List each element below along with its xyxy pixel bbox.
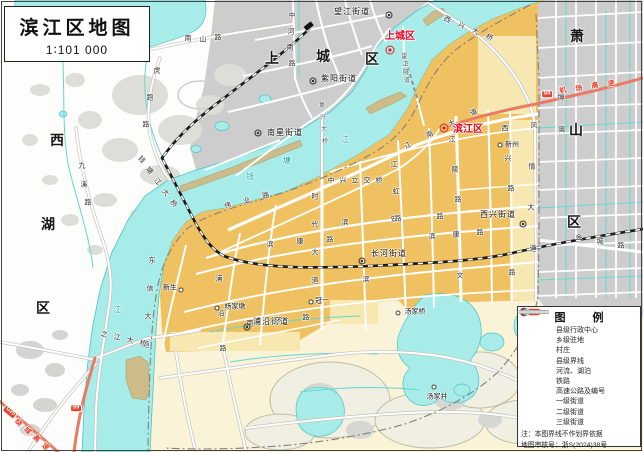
map-label-redrd: 场 [575, 85, 583, 93]
map-label-road: 滨 [267, 242, 274, 249]
map-label-redrd: 高 [591, 82, 599, 90]
map-label-road: 九 [79, 163, 86, 170]
map-label-road: 康 [297, 239, 304, 246]
map-label-dist: 区 [36, 301, 50, 315]
legend-row: 铁路 [518, 376, 640, 386]
map-label-road: 桥 [168, 199, 178, 209]
map-label-road: 中 [328, 178, 335, 185]
map-label-rdsm: 隧 [403, 70, 409, 76]
map-label-red: 上城区 [385, 32, 415, 42]
marker-vill [432, 385, 437, 390]
map-label-road: 路 [143, 122, 150, 129]
map-label-road: 南 [425, 130, 434, 139]
marker-town [244, 324, 251, 331]
map-label-road: 钱 [136, 155, 146, 165]
map-label-road: 浦 [216, 276, 223, 283]
map-label-water: 塘 [283, 157, 291, 165]
map-label-road: 环 [275, 318, 282, 325]
map-label-road: 江 [449, 137, 456, 144]
map-stage: 西湖区上城区萧山区上城区滨江区望江街道紫阳街道南星街道西兴街道长河街道浦沿街道杨… [0, 0, 643, 452]
map-label-road: 兴 [505, 156, 512, 163]
map-label-road: 沿 [218, 311, 225, 318]
map-label-road: 路 [289, 61, 296, 68]
marker-town [359, 258, 366, 265]
map-label-dist: 萧 [570, 29, 584, 43]
map-label-road: 路 [509, 270, 516, 277]
map-title: 滨江区地图 [5, 13, 149, 40]
map-label-town: 紫阳街道 [321, 75, 357, 83]
map-label-redrd: 机 [559, 87, 567, 95]
legend-row: 县级行政中心 [518, 325, 640, 335]
map-label-dist: 西 [50, 133, 64, 147]
map-label-town: 南星街道 [267, 129, 303, 137]
map-label-road: 跑 [147, 95, 154, 102]
map-label-road: 陵 [452, 167, 459, 174]
map-label-road: 路 [85, 200, 92, 207]
map-label-road: 中 [289, 13, 296, 20]
map-label-road: 路 [395, 216, 402, 223]
map-label-road: 山 [200, 37, 207, 44]
marker-town [520, 221, 527, 228]
marker-vill [498, 143, 503, 148]
map-label-road: 河 [288, 29, 295, 36]
map-label-road: 情 [529, 164, 536, 171]
map-label-road: 虎 [154, 68, 161, 75]
map-label-road: 滨 [363, 277, 370, 284]
map-label-redrd: 高 [31, 434, 41, 444]
map-label-road: 大 [160, 188, 170, 198]
map-label-vill: 冠一 [315, 298, 329, 305]
map-label-road: 桥 [376, 178, 383, 185]
legend-row: 一级街道 [518, 396, 640, 406]
map-label-vill: 新州 [505, 142, 519, 149]
legend-row: 县级界线 [518, 356, 640, 366]
marker-cc [440, 124, 449, 133]
map-label-vill: 杨家墩 [225, 304, 246, 311]
map-label-road: 业 [243, 197, 252, 206]
map-label-rdsm: 大 [321, 127, 327, 133]
map-label-road: 大 [312, 250, 319, 257]
marker-town [310, 78, 317, 85]
map-label-road: 立 [352, 178, 359, 185]
map-label-road: 滨 [342, 220, 349, 227]
map-label-vill: 汤家井 [427, 394, 448, 401]
map-label-dist: 区 [365, 52, 379, 66]
map-label-road: 南 [185, 36, 192, 43]
legend-row: 村庄 [518, 345, 640, 355]
map-label-road: 桥 [139, 340, 147, 348]
map-label-vill: 汤家桥 [405, 309, 426, 316]
map-label-rdsm: 望 [401, 54, 407, 60]
map-scale: 1∶101 000 [5, 43, 149, 57]
map-label-road: 兴 [456, 21, 465, 30]
map-label-road: 西 [502, 126, 509, 133]
marker-town [386, 12, 393, 19]
map-label-road: 道 [312, 278, 319, 285]
map-label-road: 交 [364, 178, 371, 185]
map-label-road: 风 [531, 123, 538, 130]
legend-row: 乡级驻地 [518, 335, 640, 345]
map-label-road: 滨 [429, 234, 436, 241]
legend-note: 注：本图界线不作划界依据 [518, 427, 640, 438]
map-label-road: 路 [477, 230, 484, 237]
map-label-road: 塘 [144, 166, 154, 176]
map-label-road: 路 [455, 197, 462, 204]
map-label-road: 路 [508, 186, 515, 193]
map-label-road: 时 [312, 194, 319, 201]
legend-row: 河流、湖泊 [518, 366, 640, 376]
map-label-town: 浦沿街道 [253, 318, 289, 326]
map-label-road: 兴 [340, 178, 347, 185]
map-label-road: 桥 [484, 33, 493, 42]
map-label-road: 奥 [559, 127, 566, 134]
map-label-town: 望江街道 [334, 8, 370, 16]
marker-town [255, 130, 262, 137]
map-label-road: 代 [312, 222, 319, 229]
map-label-road: 江 [391, 162, 398, 169]
map-label-road: 溪 [81, 182, 88, 189]
map-label-badge: S4 [541, 90, 553, 98]
legend-approval: 地图审核号：浙S(2024)38号 [518, 438, 640, 449]
map-label-redrd: 速 [40, 442, 50, 452]
map-label-water: 江 [113, 306, 121, 314]
marker-cc [386, 46, 395, 55]
map-label-road: 道 [530, 246, 537, 253]
map-label-dist: 山 [569, 123, 583, 137]
map-label-road: 之 [100, 331, 108, 339]
map-label-road: 伟 [224, 202, 233, 211]
map-label-road: 路 [437, 214, 444, 221]
map-label-road: 江 [403, 141, 412, 150]
map-label-road: 大 [470, 27, 479, 36]
legend-row: 二级街道 [518, 407, 640, 417]
marker-vill [396, 311, 401, 316]
map-label-road: 信 [147, 286, 154, 293]
legend: 图 例 县级行政中心 乡级驻地 村庄 县级界线 河流、湖泊 铁路 S4 高速公路… [517, 306, 641, 447]
map-label-dist: 区 [567, 215, 581, 229]
legend-row: S4 高速公路及编号 [518, 386, 640, 396]
map-label-road: 路 [327, 237, 334, 244]
map-label-road: 江 [152, 177, 162, 187]
legend-row: 三级街道 [518, 417, 640, 427]
marker-vill [179, 288, 184, 293]
map-label-road: 虹 [393, 189, 400, 196]
map-label-road: 道 [469, 108, 478, 117]
map-label-road: 路 [262, 192, 271, 201]
map-label-rdsm: 道 [404, 78, 410, 84]
map-label-badge: G25 [2, 404, 19, 420]
map-label-road: 城 [597, 239, 604, 246]
map-label-water: 钱 [246, 173, 254, 181]
map-label-rdsm: 兴 [320, 115, 326, 121]
map-label-road: 文 [457, 273, 464, 280]
map-label-road: 路 [618, 243, 625, 250]
map-label-road: 路 [215, 35, 222, 42]
map-label-vill: 新生 [163, 285, 177, 292]
map-label-dist: 湖 [41, 217, 55, 231]
title-box: 滨江区地图 1∶101 000 [4, 6, 150, 62]
map-label-dist: 上 [265, 51, 279, 65]
map-label-road: 大 [126, 337, 134, 345]
map-label-redrd: 绕 [13, 418, 23, 428]
map-label-road: 西 [442, 15, 451, 24]
map-label-road: 康 [453, 232, 460, 239]
map-label-red: 滨江区 [453, 125, 483, 135]
marker-vill [309, 300, 314, 305]
map-label-road: 大 [528, 205, 535, 212]
map-label-rdsm: 江 [402, 62, 408, 68]
map-label-road: 东 [149, 258, 156, 265]
map-label-road: 路 [220, 346, 227, 353]
map-label-road: 南 [287, 45, 294, 52]
map-label-badge: S9 [70, 404, 82, 412]
map-label-rdsm: 复 [319, 103, 325, 109]
map-label-rdsm: 桥 [322, 139, 328, 145]
map-label-road: 博 [558, 95, 565, 102]
map-label-town: 西兴街道 [480, 211, 516, 219]
map-label-water: 江 [341, 136, 349, 144]
map-label-redrd: 城 [22, 426, 32, 436]
map-label-road: 大 [145, 314, 152, 321]
map-label-road: 江 [113, 334, 121, 342]
map-label-road: 金 [576, 235, 583, 242]
marker-vill [215, 306, 220, 311]
map-label-redrd: 速 [607, 80, 615, 88]
map-label-town: 长河街道 [371, 250, 407, 258]
map-label-dist: 城 [316, 49, 330, 63]
map-label-road: 路 [303, 315, 310, 322]
